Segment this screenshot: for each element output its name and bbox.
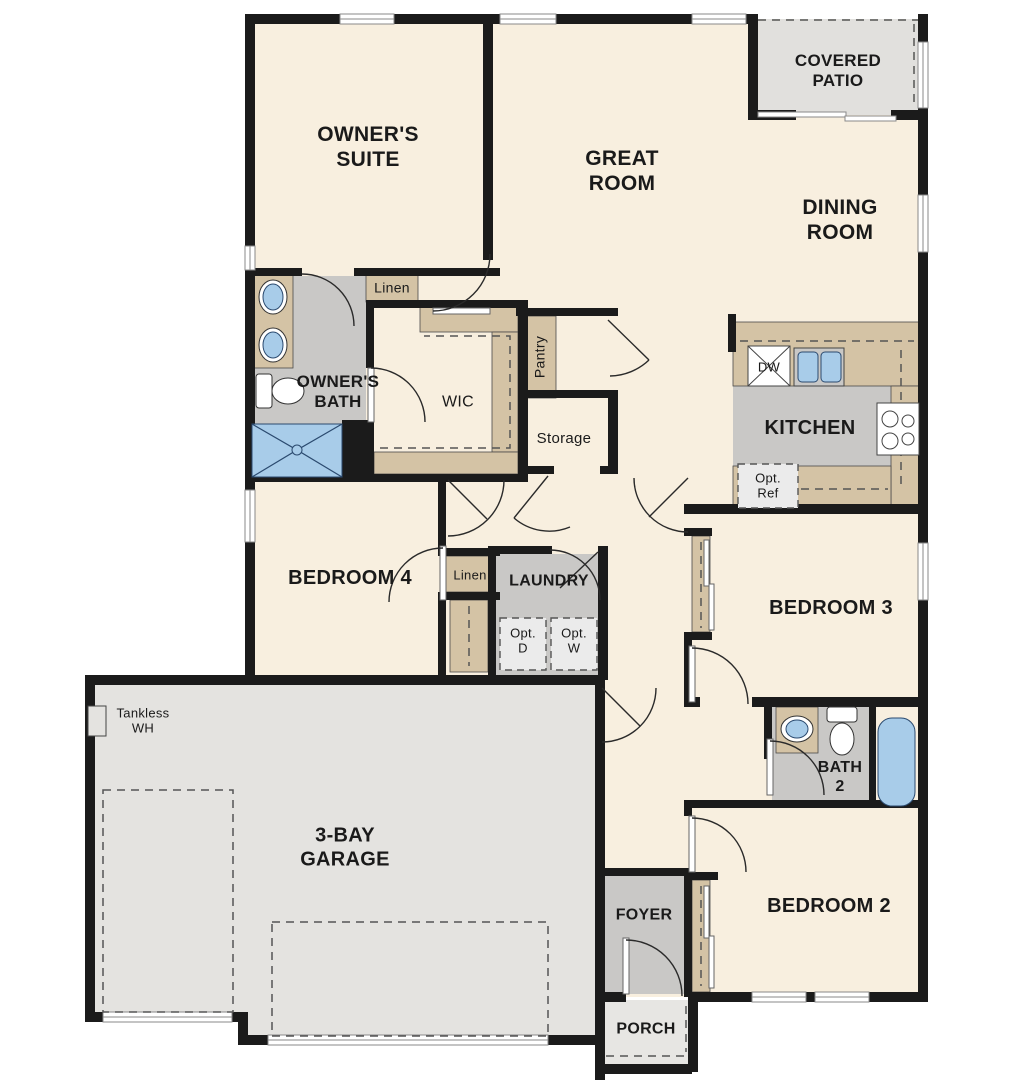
room-label-bedroom3: BEDROOM 3 xyxy=(769,597,893,621)
room-label-bedroom4: BEDROOM 4 xyxy=(288,567,412,591)
room-label-linen-upper: Linen xyxy=(374,280,410,297)
window xyxy=(918,195,928,252)
bath-sink-icon xyxy=(259,280,287,314)
room-label-linen-hall: Linen xyxy=(453,567,486,582)
room-label-porch: PORCH xyxy=(616,1021,675,1040)
tankless-water-heater-icon xyxy=(88,706,106,736)
fixture-label-dw: DW xyxy=(758,359,780,374)
room-label-owners-bath: OWNER'S BATH xyxy=(297,372,380,412)
window xyxy=(500,14,556,24)
room-label-foyer: FOYER xyxy=(616,907,673,926)
floor-plan: OWNER'S SUITE GREAT ROOM COVERED PATIO D… xyxy=(0,0,1015,1086)
window xyxy=(692,14,746,24)
wic-shelf-right xyxy=(492,332,518,452)
fixture-label-opt-w: Opt. W xyxy=(561,626,587,657)
room-label-bath2: BATH 2 xyxy=(818,759,862,797)
window xyxy=(245,490,255,542)
bath2-sink-icon xyxy=(781,716,813,742)
toilet-icon xyxy=(827,707,857,755)
room-label-kitchen: KITCHEN xyxy=(765,417,856,441)
garage-door-opening xyxy=(103,1012,232,1022)
room-label-covered-patio: COVERED PATIO xyxy=(795,51,881,91)
window xyxy=(340,14,394,24)
window xyxy=(918,42,928,108)
wic-shelf-bottom xyxy=(374,452,518,474)
window xyxy=(815,992,869,1002)
fixture-label-opt-d: Opt. D xyxy=(510,626,536,657)
kitchen-sink-icon xyxy=(794,348,844,386)
foyer-floor xyxy=(604,876,686,994)
room-label-laundry: LAUNDRY xyxy=(509,573,589,592)
window xyxy=(752,992,806,1002)
window xyxy=(918,543,928,600)
cooktop-icon xyxy=(877,403,919,455)
room-label-bedroom2: BEDROOM 2 xyxy=(767,895,891,919)
shower-icon xyxy=(252,424,342,477)
room-label-pantry: Pantry xyxy=(532,336,549,378)
room-label-owners-suite: OWNER'S SUITE xyxy=(317,123,419,173)
bath-sink-icon xyxy=(259,328,287,362)
garage-door-opening xyxy=(268,1035,548,1045)
room-label-storage: Storage xyxy=(537,430,592,448)
fixture-label-tankless-wh: Tankless WH xyxy=(117,706,170,737)
room-label-great-room: GREAT ROOM xyxy=(585,147,658,197)
fixture-label-opt-ref: Opt. Ref xyxy=(755,471,781,502)
room-label-garage: 3-BAY GARAGE xyxy=(300,824,390,871)
room-label-wic: WIC xyxy=(442,394,474,413)
bathtub-icon xyxy=(878,718,915,806)
room-label-dining-room: DINING ROOM xyxy=(802,196,877,246)
window xyxy=(245,246,255,270)
floor-plan-drawing xyxy=(0,0,1015,1086)
